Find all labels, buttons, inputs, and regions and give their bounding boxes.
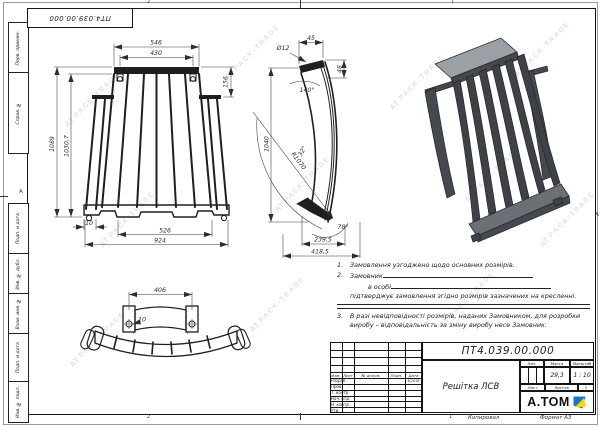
date-value: 6.2018 (405, 378, 422, 384)
margin-field-label: Инв. № подл. (16, 386, 21, 418)
footer-copied: Копировал (468, 415, 499, 421)
dim-label: 406 (154, 287, 166, 294)
bottom-view-dimensions: 406 10 (129, 287, 192, 324)
note-text: Замовлення узгоджено щодо основних розмі… (350, 261, 515, 270)
note-2: 2. Замовник в особі підтверджує замовлен… (337, 271, 590, 301)
iso-part (425, 38, 570, 242)
note-text-line: в особі (368, 283, 391, 291)
col-docum: № докум. (354, 372, 388, 378)
col-podp: Подп. (388, 372, 405, 378)
dim-label: 1030,7 (64, 135, 71, 157)
note-text-line: підтверджує замовлення згідно розмірів з… (350, 292, 576, 300)
mass-value: 29,3 (544, 367, 570, 384)
sheets-label: Листов (545, 384, 578, 391)
margin-field-label: Инв. № дубл. (16, 258, 21, 290)
zone-tick-top (300, 0, 301, 8)
part-name-cell: Решітка ЛСВ (422, 360, 520, 413)
sheets-value: 1 (578, 384, 594, 391)
margin-field-perv-primen: Перв. примен. (8, 22, 29, 74)
note-text-line: Замовник (350, 272, 383, 280)
margin-field-sprav-no: Справ. № (8, 72, 29, 154)
doc-number-rotated: ПТ4.039.00.000 (49, 14, 111, 22)
zone-tick-bottom (300, 413, 301, 420)
dim-label: 45 (307, 35, 315, 42)
front-view: 546 430 156 1089 1030,7 10 526 924 (40, 36, 240, 252)
dim-label: Ø12 (276, 44, 290, 52)
iso-view (413, 26, 593, 240)
zone-letter-left: А (19, 189, 23, 195)
footer-format: Формат А3 (540, 415, 571, 421)
dim-label: 10 (138, 317, 146, 324)
dim-label: 48 (337, 65, 344, 73)
dim-label: 418,5 (311, 249, 329, 256)
zone-number-top-right: 1 (451, 0, 454, 5)
dim-label: 156 (223, 76, 230, 88)
dim-label: 140° (300, 86, 315, 94)
dim-label: 1089 (49, 136, 56, 152)
margin-field-podp-data2: Подп. и дата (8, 333, 29, 383)
dim-label: 239,5 (314, 237, 332, 244)
dim-label: 32° (296, 144, 308, 157)
lit-cell (520, 367, 544, 384)
fill-in-blank (383, 271, 533, 278)
note-number: 1. (337, 261, 350, 270)
side-view: 45 Ø12 48 140° 1040 R1070 32° 78° 239,5 … (250, 26, 372, 264)
lit-header: Лит. (520, 360, 544, 367)
dim-label: 430 (150, 50, 162, 57)
note-text: В разі невідповідності розмірів, наданих… (350, 312, 590, 331)
note-number: 3. (337, 312, 350, 331)
margin-field-label: Подп. и дата (16, 342, 21, 373)
dim-label: 10 (85, 220, 93, 227)
atom-emblem-icon (572, 395, 587, 410)
dim-label: 526 (159, 228, 171, 235)
notes-divider (337, 304, 590, 309)
drawing-sheet: АТPACK-TRADE АТPACK-TRADE АТPACK-TRADE А… (0, 0, 600, 426)
margin-field-vzam-inv: Взам. инв. № (8, 293, 29, 335)
note-text: Замовник в особі підтверджує замовлення … (350, 271, 576, 301)
bottom-view-part (79, 306, 251, 357)
company-logo: А.ТОМ (527, 395, 586, 410)
note-3: 3. В разі невідповідності розмірів, нада… (337, 312, 590, 331)
company-name: А.ТОМ (527, 395, 569, 409)
mass-header: Масса (544, 360, 570, 367)
scale-header: Масштаб (570, 360, 594, 367)
title-block: Изм. Лист № докум. Подп. Дата Разраб. Пр… (330, 342, 594, 413)
margin-field-inv-podl: Инв. № подл. (8, 381, 29, 423)
dim-label: 78° (338, 223, 349, 231)
note-number: 2. (337, 271, 350, 301)
dim-label: 924 (154, 238, 166, 245)
margin-field-podp-data1: Подп. и дата (8, 203, 29, 255)
company-cell: А.ТОМ (520, 391, 594, 413)
zone-tick-left (0, 196, 8, 197)
margin-field-label: Справ. № (16, 102, 21, 125)
bottom-view: 406 10 (83, 284, 249, 372)
dim-label: 1040 (264, 136, 271, 152)
doc-number: ПТ4.039.00.000 (462, 345, 555, 357)
doc-number-stamp: ПТ4.039.00.000 (27, 8, 133, 28)
row-utv: Утв. (331, 407, 354, 413)
margin-field-inv-dubl: Инв. № дубл. (8, 253, 29, 295)
zone-number-bottom-left: 2 (147, 415, 150, 420)
zone-letter-right: А (595, 212, 599, 218)
dim-label: 546 (150, 40, 162, 47)
sheet-label: Лист (520, 384, 545, 391)
zone-number-bottom-right: 1 (449, 415, 452, 420)
fill-in-blank (391, 282, 551, 289)
part-name: Решітка ЛСВ (443, 382, 500, 392)
margin-field-label: Подп. и дата (16, 213, 21, 244)
scale-value: 1 : 10 (570, 367, 594, 384)
zone-number-top-left: 2 (147, 0, 150, 5)
margin-field-label: Перв. примен. (16, 31, 21, 66)
doc-number-cell: ПТ4.039.00.000 (422, 342, 594, 360)
notes: 1. Замовлення узгоджено щодо основних ро… (337, 261, 590, 331)
margin-field-label: Взам. инв. № (16, 298, 21, 329)
note-1: 1. Замовлення узгоджено щодо основних ро… (337, 261, 590, 270)
front-view-part (84, 67, 229, 221)
